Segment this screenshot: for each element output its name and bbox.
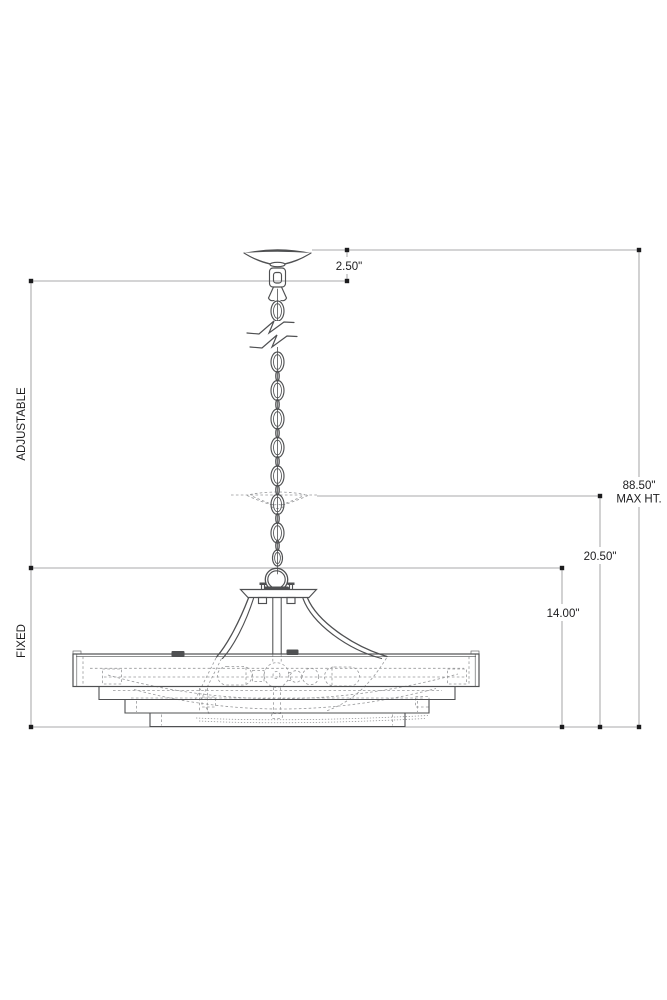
label-canopy-height: 2.50": [336, 261, 362, 273]
center-stem: [273, 598, 281, 654]
bulb-right: [325, 667, 360, 686]
socket-right: [302, 668, 318, 684]
bulb-left: [218, 667, 253, 686]
technical-drawing-svg: 2.50" 88.50" MAX HT. 20.50" 14.00" ADJUS…: [0, 0, 667, 1000]
bolt-left: [259, 598, 267, 604]
bowl-finial: [272, 714, 283, 719]
drawing-canvas: 2.50" 88.50" MAX HT. 20.50" 14.00" ADJUS…: [0, 0, 667, 1000]
hanging-chain: [247, 289, 299, 574]
label-min-overall-drop: 20.50": [584, 551, 617, 563]
bolt-right: [287, 598, 295, 604]
support-arm-right: [308, 598, 388, 657]
arm-mount-tab-left: [172, 651, 185, 657]
socket-hub: [264, 663, 289, 688]
chain-break-symbol: [247, 321, 299, 348]
dimension-lines: [31, 250, 639, 727]
tiered-shade: [73, 650, 479, 727]
shade-hidden-lines: [83, 654, 469, 726]
bowl-clip-left: [202, 697, 216, 707]
fixture-top-assembly: [217, 568, 388, 658]
dimension-dots: [29, 248, 641, 729]
dimension-labels: 2.50" 88.50" MAX HT. 20.50" 14.00" ADJUS…: [16, 257, 665, 658]
bowl-strap-right: [325, 658, 387, 712]
label-fixture-height: 14.00": [547, 608, 580, 620]
bowl-rim-texture: [196, 716, 428, 720]
label-fixed-section: FIXED: [16, 624, 28, 658]
label-adjustable-section: ADJUSTABLE: [16, 387, 28, 461]
bowl-strap-left: [196, 658, 217, 699]
shade-tier-3: [125, 700, 429, 714]
chain-link-box: [270, 268, 286, 287]
socket-left: [253, 671, 265, 682]
mounting-plate: [241, 590, 317, 598]
hidden-details: [83, 492, 469, 726]
label-max-height: 88.50": [623, 480, 656, 492]
shade-tier-2: [99, 687, 455, 700]
label-max-height-note: MAX HT.: [616, 494, 661, 506]
bowl-curve-inner: [134, 689, 436, 710]
arm-mount-tab-back: [287, 650, 299, 656]
support-arm-left: [217, 598, 249, 657]
